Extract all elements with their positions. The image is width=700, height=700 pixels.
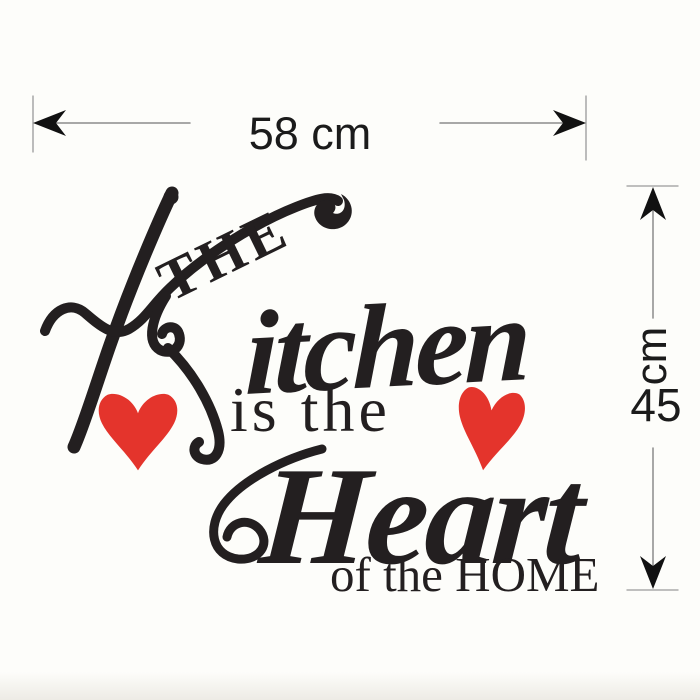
decal-phrase-is-the: is the (230, 378, 391, 442)
wall-decal-product-image: THE itchen is the Heart of the HOME 58 c… (0, 0, 700, 700)
heart-icon (99, 394, 178, 470)
decal-phrase-of-the-home: of the HOME (330, 550, 599, 599)
height-dimension-value: 45 (630, 382, 681, 428)
height-dimension-unit: cm (630, 327, 674, 386)
width-dimension-label: 58 cm (249, 111, 372, 156)
